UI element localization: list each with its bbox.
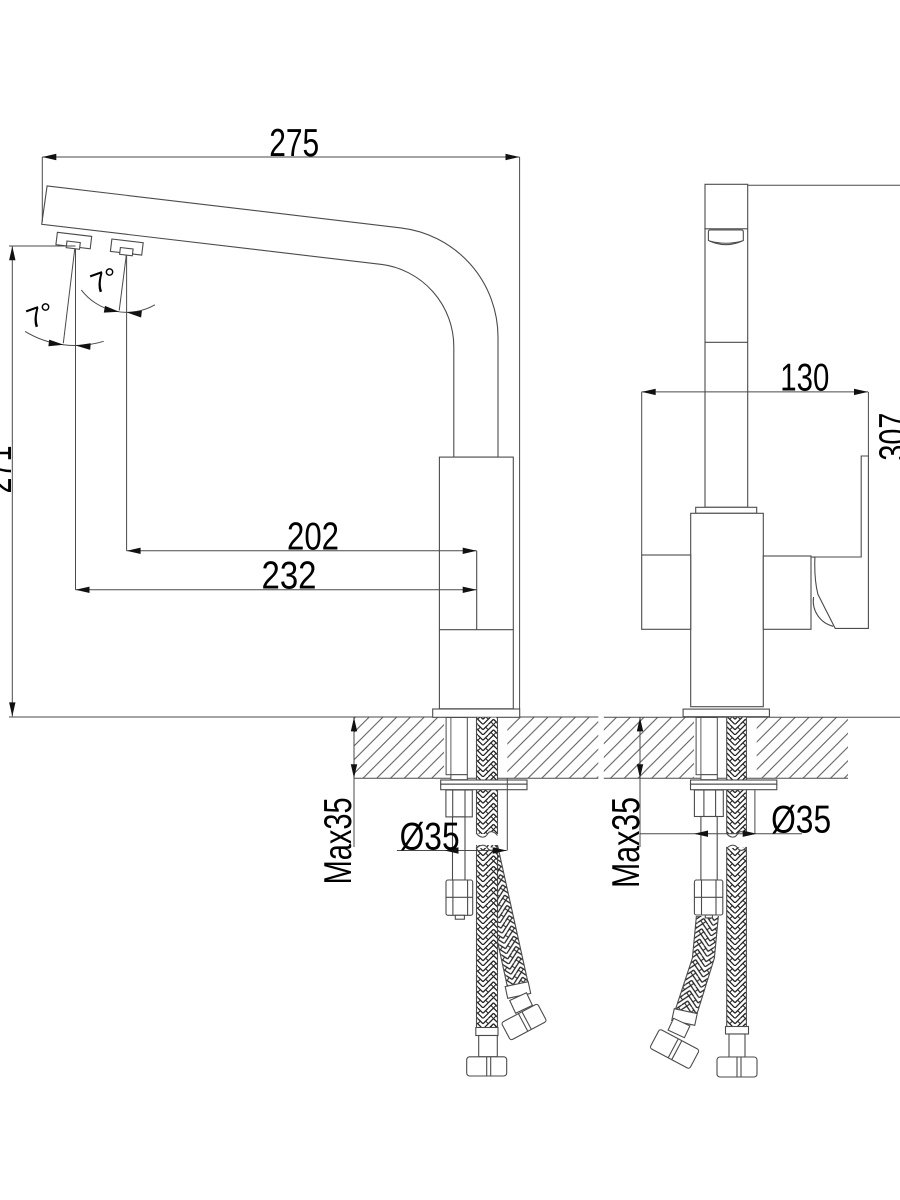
- svg-text:271: 271: [0, 446, 20, 494]
- svg-text:Ø35: Ø35: [771, 799, 831, 842]
- svg-text:Max35: Max35: [605, 797, 648, 888]
- svg-text:7°: 7°: [86, 261, 122, 299]
- svg-text:7°: 7°: [22, 296, 58, 334]
- svg-text:130: 130: [780, 356, 829, 399]
- svg-text:232: 232: [262, 555, 317, 598]
- svg-text:Ø35: Ø35: [400, 816, 460, 859]
- svg-text:275: 275: [269, 122, 319, 165]
- svg-text:Max35: Max35: [317, 797, 360, 884]
- svg-text:202: 202: [287, 516, 339, 559]
- svg-text:307: 307: [872, 413, 900, 461]
